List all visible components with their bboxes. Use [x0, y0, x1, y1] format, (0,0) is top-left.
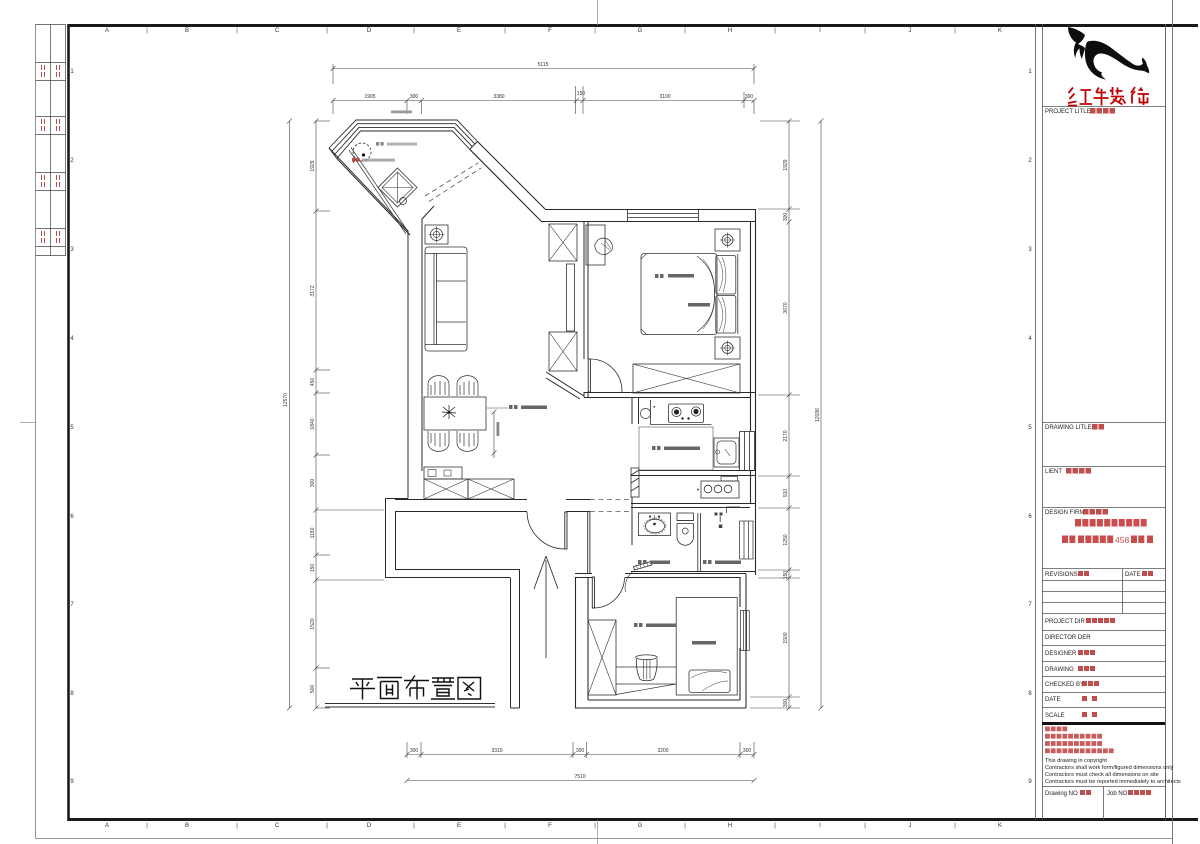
svg-text:1929: 1929 [783, 159, 789, 170]
svg-text:3670: 3670 [783, 302, 789, 313]
svg-text:G: G [638, 823, 643, 829]
svg-text:D: D [367, 28, 372, 34]
svg-text:300: 300 [410, 94, 419, 100]
svg-text:300: 300 [783, 213, 789, 222]
svg-text:1840: 1840 [310, 418, 316, 429]
svg-text:Contractors must check all dim: Contractors must check all dimensions on… [1045, 772, 1159, 778]
svg-text:Contractors shall work form/fi: Contractors shall work form/figured dime… [1045, 765, 1174, 771]
svg-text:1250: 1250 [783, 534, 789, 545]
svg-text:J: J [909, 823, 912, 829]
svg-text:300: 300 [745, 94, 754, 100]
svg-text:150: 150 [310, 564, 316, 573]
svg-text:H: H [728, 823, 732, 829]
svg-text:1929: 1929 [310, 160, 316, 171]
svg-text:B: B [185, 28, 189, 34]
svg-text:PROJECT LITLE: PROJECT LITLE [1045, 109, 1091, 115]
svg-text:J: J [909, 28, 912, 34]
svg-text:2170: 2170 [783, 430, 789, 441]
svg-text:5115: 5115 [538, 62, 549, 68]
svg-text:A: A [105, 823, 109, 829]
svg-text:3172: 3172 [310, 285, 316, 296]
svg-text:1180: 1180 [310, 527, 316, 538]
svg-text:7510: 7510 [574, 774, 585, 780]
svg-text:K: K [998, 28, 1002, 34]
svg-text:150: 150 [577, 91, 586, 97]
svg-text:300: 300 [743, 748, 752, 754]
svg-text:12570: 12570 [283, 393, 289, 407]
svg-text:G: G [638, 28, 643, 34]
svg-text:DESIGNER: DESIGNER [1045, 651, 1077, 657]
svg-text:3310: 3310 [491, 748, 502, 754]
svg-text:458: 458 [1115, 535, 1129, 545]
svg-text:450: 450 [310, 378, 316, 387]
svg-text:C: C [275, 28, 280, 34]
svg-text:SCALE: SCALE [1045, 713, 1065, 719]
svg-text:Contractors must be reported i: Contractors must be reported immediately… [1045, 779, 1181, 785]
svg-text:DRAWING LITLE: DRAWING LITLE [1045, 425, 1091, 431]
svg-text:D: D [367, 823, 372, 829]
svg-text:1905: 1905 [364, 94, 375, 100]
svg-text:E: E [457, 28, 461, 34]
svg-text:12036: 12036 [815, 408, 821, 422]
svg-text:DRAWING: DRAWING [1045, 667, 1074, 673]
svg-text:300: 300 [410, 748, 419, 754]
svg-text:3100: 3100 [659, 94, 670, 100]
svg-text:CHECKED BY: CHECKED BY [1045, 682, 1084, 688]
svg-text:This drawing in copyright: This drawing in copyright [1045, 758, 1107, 764]
svg-text:DATE: DATE [1045, 697, 1061, 703]
svg-text:F: F [548, 28, 552, 34]
svg-text:1520: 1520 [310, 618, 316, 629]
svg-text:PROJECT DIR: PROJECT DIR [1045, 619, 1086, 625]
svg-text:DIRECTOR DER: DIRECTOR DER [1045, 635, 1091, 641]
svg-text:H: H [728, 28, 732, 34]
svg-text:A: A [105, 28, 109, 34]
svg-text:REVISIONS: REVISIONS [1045, 572, 1078, 578]
svg-text:K: K [998, 823, 1002, 829]
svg-text:Job NO: Job NO [1107, 791, 1128, 797]
svg-text:DATE: DATE [1125, 572, 1141, 578]
svg-text:300: 300 [576, 748, 585, 754]
svg-text:300: 300 [310, 479, 316, 488]
svg-text:C: C [275, 823, 280, 829]
svg-text:500: 500 [310, 685, 316, 694]
svg-text:E: E [457, 823, 461, 829]
svg-text:1500: 1500 [783, 632, 789, 643]
svg-text:150: 150 [783, 571, 789, 580]
svg-text:300: 300 [783, 699, 789, 708]
svg-text:3380: 3380 [493, 94, 504, 100]
svg-text:LIENT: LIENT [1045, 469, 1062, 475]
svg-text:B: B [185, 823, 189, 829]
svg-text:Drawing NO: Drawing NO [1045, 791, 1078, 797]
svg-text:510: 510 [783, 489, 789, 498]
svg-text:F: F [548, 823, 552, 829]
svg-text:DESIGN FIRM: DESIGN FIRM [1045, 510, 1084, 516]
svg-text:3200: 3200 [657, 748, 668, 754]
